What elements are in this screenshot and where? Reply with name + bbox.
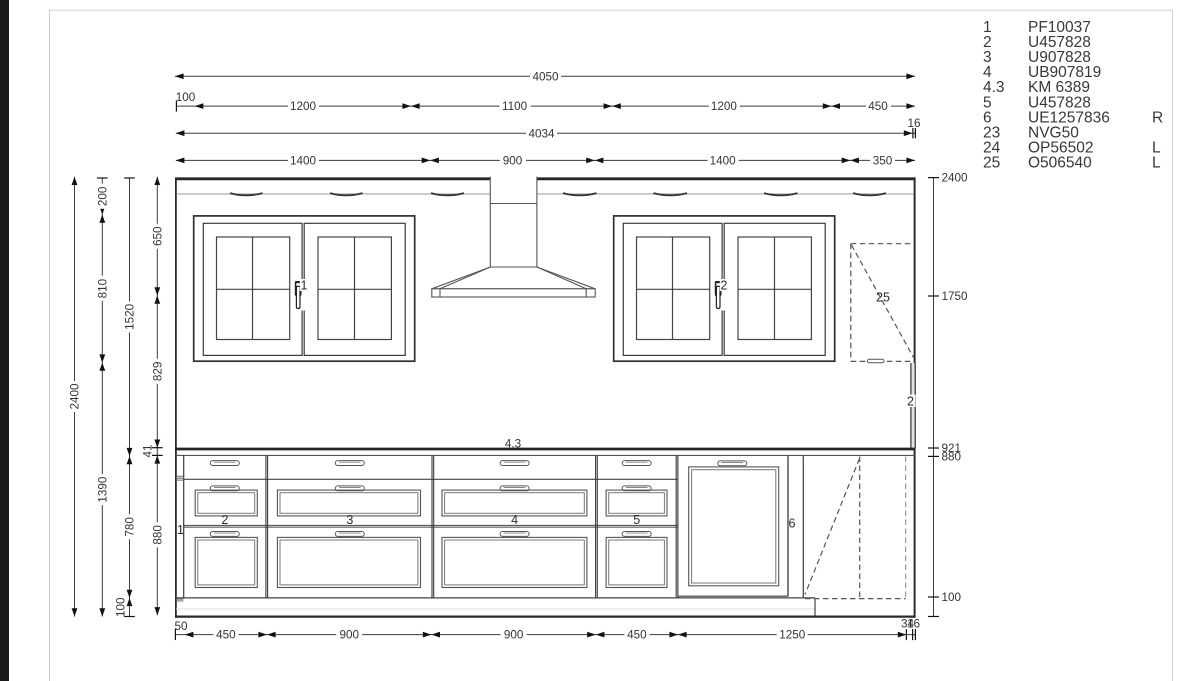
svg-text:880: 880 [942,451,962,464]
svg-text:100: 100 [942,591,962,604]
svg-text:1250: 1250 [779,629,806,642]
svg-text:900: 900 [339,629,359,642]
svg-text:880: 880 [151,525,164,545]
svg-text:1520: 1520 [124,303,137,330]
svg-text:900: 900 [503,155,523,168]
svg-text:780: 780 [124,517,137,537]
svg-text:829: 829 [151,362,164,382]
svg-text:1100: 1100 [502,100,528,113]
svg-text:1400: 1400 [710,155,737,168]
svg-text:450: 450 [627,629,647,642]
svg-text:4: 4 [511,513,518,527]
svg-text:650: 650 [151,226,164,246]
svg-text:3: 3 [346,513,353,527]
svg-text:4050: 4050 [532,70,559,83]
svg-text:O506540: O506540 [1028,155,1092,172]
svg-text:810: 810 [96,278,109,298]
svg-text:2400: 2400 [69,383,82,410]
svg-text:450: 450 [868,100,888,113]
svg-text:2: 2 [221,513,228,527]
svg-text:100: 100 [115,597,128,617]
svg-text:25: 25 [876,290,890,304]
svg-text:100: 100 [176,91,196,104]
svg-text:25: 25 [983,155,1000,172]
svg-text:1200: 1200 [290,100,317,113]
svg-text:1200: 1200 [711,100,738,113]
svg-text:2: 2 [721,279,728,293]
svg-text:1750: 1750 [942,290,969,303]
svg-text:1: 1 [301,279,308,293]
svg-text:1: 1 [177,523,184,537]
svg-text:5: 5 [633,513,640,527]
svg-text:350: 350 [873,155,893,168]
svg-text:2400: 2400 [942,172,969,185]
svg-text:50: 50 [174,620,188,633]
svg-text:1390: 1390 [96,476,109,503]
svg-text:L: L [1152,155,1161,172]
svg-text:1400: 1400 [290,155,317,168]
svg-text:16: 16 [907,117,920,130]
svg-text:R: R [1152,109,1163,126]
svg-text:16: 16 [907,617,920,630]
svg-text:4034: 4034 [528,127,555,140]
svg-text:900: 900 [504,629,524,642]
svg-text:450: 450 [216,629,236,642]
svg-text:6: 6 [789,516,796,530]
svg-text:2: 2 [907,394,914,408]
svg-text:41: 41 [142,444,155,457]
svg-text:200: 200 [96,186,109,206]
